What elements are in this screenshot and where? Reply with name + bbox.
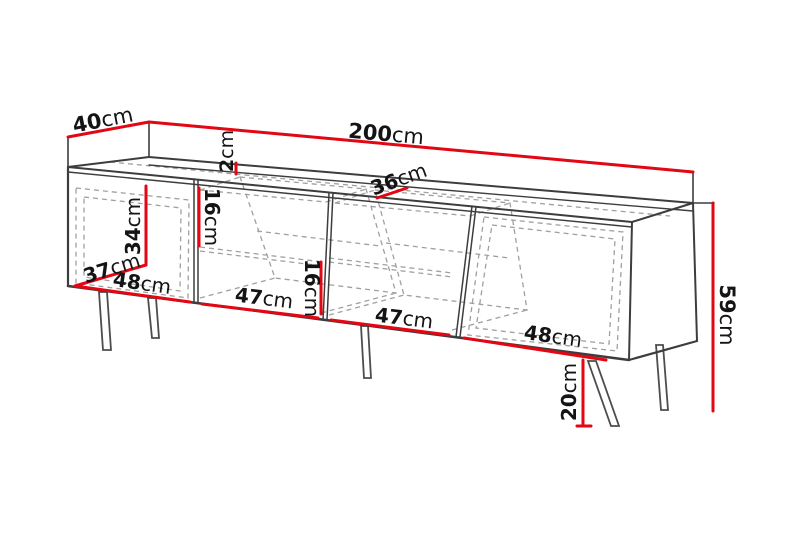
- right-panel-back-edge: [693, 203, 697, 341]
- label-total-depth: 40cm: [70, 102, 135, 137]
- label-total-width: 200cm: [347, 119, 425, 150]
- divider-3: [456, 206, 472, 337]
- shelf-right-front-edge: [329, 258, 452, 273]
- label-top-thickness: 2cm: [216, 130, 238, 172]
- leg-right-back: [656, 345, 668, 410]
- label-total-height: 59cm: [715, 284, 739, 345]
- open-section-right-back-wall: [375, 190, 527, 310]
- dimension-labels: 40cm 200cm 2cm 36cm 34cm 16cm 37cm 48cm …: [70, 102, 739, 421]
- top-left-depth-edge: [68, 157, 149, 167]
- label-door-inner-height: 34cm: [121, 197, 145, 255]
- label-shelf-opening-left: 16cm: [200, 188, 224, 246]
- leg-left-back: [148, 298, 159, 338]
- diagram-canvas: 40cm 200cm 2cm 36cm 34cm 16cm 37cm 48cm …: [0, 0, 800, 533]
- leg-middle-front: [361, 326, 371, 378]
- front-right-edge: [629, 222, 632, 360]
- top-front-thickness-edge: [68, 172, 632, 227]
- tv-stand-dimension-diagram: 40cm 200cm 2cm 36cm 34cm 16cm 37cm 48cm …: [0, 0, 800, 533]
- label-shelf-opening-right: 16cm: [300, 259, 324, 317]
- top-front-edge: [68, 167, 632, 222]
- leg-left-front: [99, 292, 111, 350]
- leg-right-front: [588, 361, 619, 426]
- right-panel-top-edge: [632, 203, 693, 222]
- shelf-left-back-edge: [257, 231, 380, 246]
- label-leg-height: 20cm: [557, 363, 581, 421]
- shelf-right-back-edge: [386, 243, 509, 258]
